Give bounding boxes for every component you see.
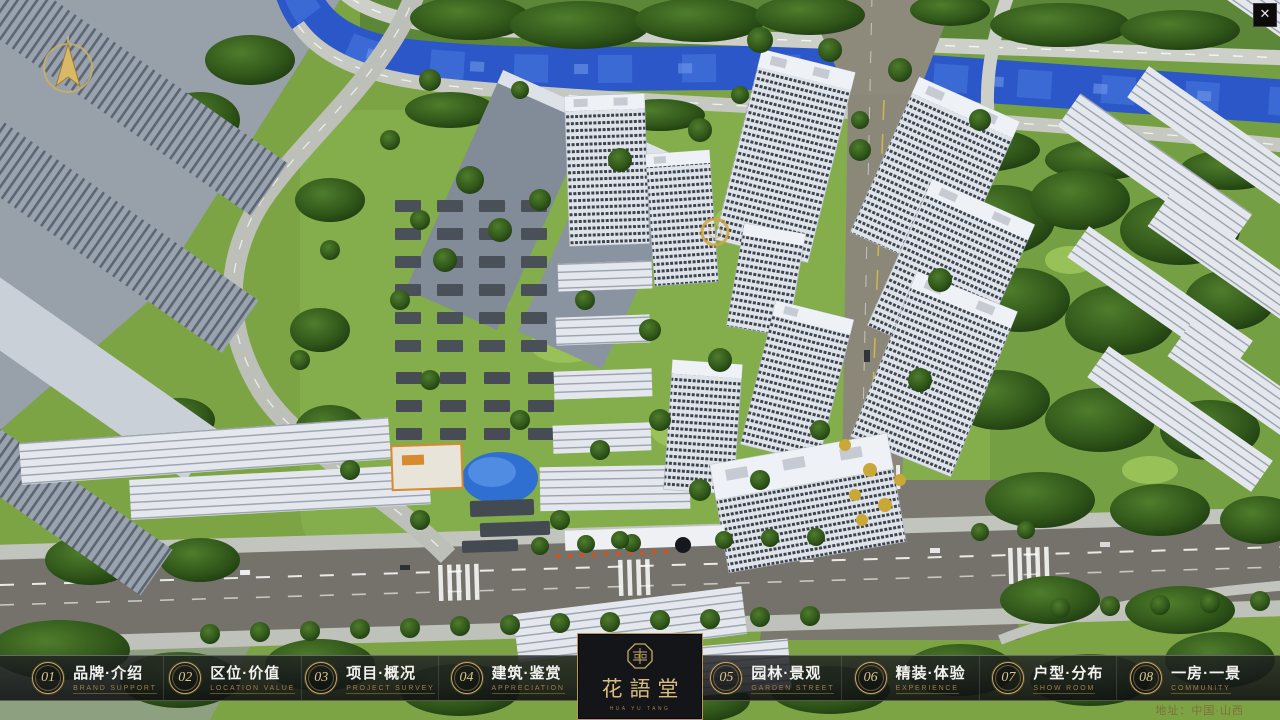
nav-number-badge: 01 [32,662,64,694]
nav-number-badge: 08 [1130,662,1162,694]
brand-emblem-icon [626,642,654,670]
nav-number-badge: 06 [855,662,887,694]
compass-icon [38,32,98,98]
nav-label-zh: 户型·分布 [1033,662,1103,683]
close-button[interactable]: ✕ [1253,3,1277,27]
nav-item-garden-landscape[interactable]: 05 园林·景观 GARDEN STREET [704,656,841,700]
nav-label-zh: 一房·一景 [1171,662,1241,683]
nav-label-en: GARDEN STREET [751,685,834,694]
nav-item-architecture[interactable]: 04 建筑·鉴赏 APPRECIATION [438,656,576,700]
nav-label-en: EXPERIENCE [896,685,959,694]
nav-number-badge: 05 [710,662,742,694]
nav-label-en: SHOW ROOM [1033,685,1095,694]
nav-number-badge: 02 [169,662,201,694]
nav-label-zh: 项目·概况 [346,662,416,683]
nav-label-en: BRAND SUPPORT [73,685,157,694]
masterplan-aerial-render [0,0,1280,720]
kindergarten-building [391,444,462,490]
nav-item-interior-experience[interactable]: 06 精装·体验 EXPERIENCE [841,656,979,700]
nav-number-badge: 04 [451,662,483,694]
nav-number-badge: 07 [992,662,1024,694]
brand-logo-panel[interactable]: 花語堂 HUA YU TANG [577,633,703,720]
nav-label-zh: 区位·价值 [210,662,280,683]
nav-label-zh: 园林·景观 [751,662,821,683]
nav-item-floorplan-distribution[interactable]: 07 户型·分布 SHOW ROOM [979,656,1117,700]
nav-item-location-value[interactable]: 02 区位·价值 LOCATION VALUE [163,656,301,700]
nav-label-en: APPRECIATION [492,685,565,694]
nav-item-brand-intro[interactable]: 01 品牌·介绍 BRAND SUPPORT [26,656,163,700]
nav-label-zh: 精装·体验 [896,662,966,683]
swimming-pool [462,452,538,504]
nav-number-badge: 03 [305,662,337,694]
nav-item-room-view[interactable]: 08 一房·一景 COMMUNITY [1116,656,1254,700]
nav-group-left: 01 品牌·介绍 BRAND SUPPORT 02 区位·价值 LOCATION… [0,656,576,700]
project-address: 地址：中国·山西 [1155,702,1244,718]
brand-logo-subtitle: HUA YU TANG [610,706,671,712]
nav-label-en: LOCATION VALUE [210,685,295,694]
nav-item-project-survey[interactable]: 03 项目·概况 PROJECT SURVEY [301,656,439,700]
nav-label-en: PROJECT SURVEY [346,685,434,694]
app-window: ✕ 01 品牌·介绍 BRAND SUPPORT 02 区位·价值 LOCATI… [0,0,1280,720]
nav-group-right: 05 园林·景观 GARDEN STREET 06 精装·体验 EXPERIEN… [704,656,1280,700]
nav-label-zh: 建筑·鉴赏 [492,662,562,683]
nav-label-en: COMMUNITY [1171,685,1230,694]
nav-label-zh: 品牌·介绍 [73,662,143,683]
brand-logo-title: 花語堂 [595,673,686,703]
